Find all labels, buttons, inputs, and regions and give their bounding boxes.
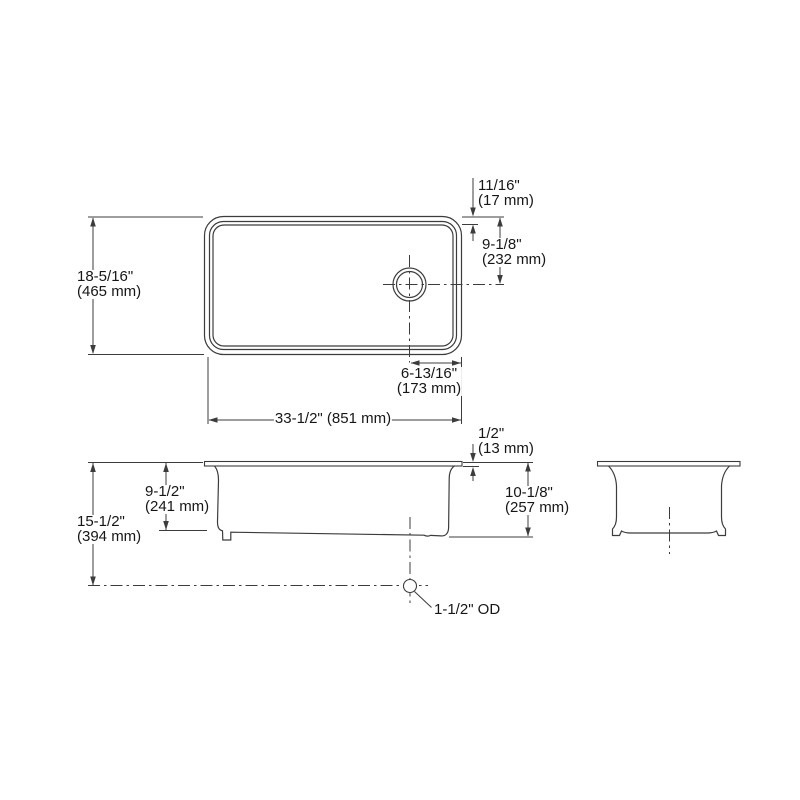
label-overall-height: 10-1/8" (257 mm)	[504, 486, 570, 515]
label-front-to-back: 18-5/16" (465 mm)	[76, 270, 142, 299]
label-drain-outlet: 1-1/2" OD	[433, 603, 501, 618]
drain-leader-line	[415, 592, 432, 608]
drawing-linework	[0, 0, 800, 800]
front-body-profile	[215, 466, 455, 540]
label-drain-offset: 6-13/16" (173 mm)	[396, 367, 462, 396]
label-drain-from-back: 9-1/8" (232 mm)	[481, 238, 547, 267]
front-rim	[205, 462, 463, 467]
top-view	[205, 217, 505, 363]
drain-outlet-circle	[404, 580, 417, 593]
label-rim-width: 11/16" (17 mm)	[477, 179, 535, 208]
label-deck-thickness: 1/2" (13 mm)	[477, 427, 535, 456]
sink-rim-inner-edge	[210, 222, 457, 350]
label-basin-depth: 9-1/2" (241 mm)	[144, 485, 210, 514]
label-overall-length: 33-1/2" (851 mm)	[274, 412, 392, 427]
sink-dimension-drawing: 11/16" (17 mm) 9-1/8" (232 mm) 18-5/16" …	[0, 0, 800, 800]
side-rim	[598, 462, 741, 467]
label-height-to-centerline: 15-1/2" (394 mm)	[76, 515, 142, 544]
sink-basin-edge	[213, 225, 453, 346]
side-view	[598, 462, 741, 555]
